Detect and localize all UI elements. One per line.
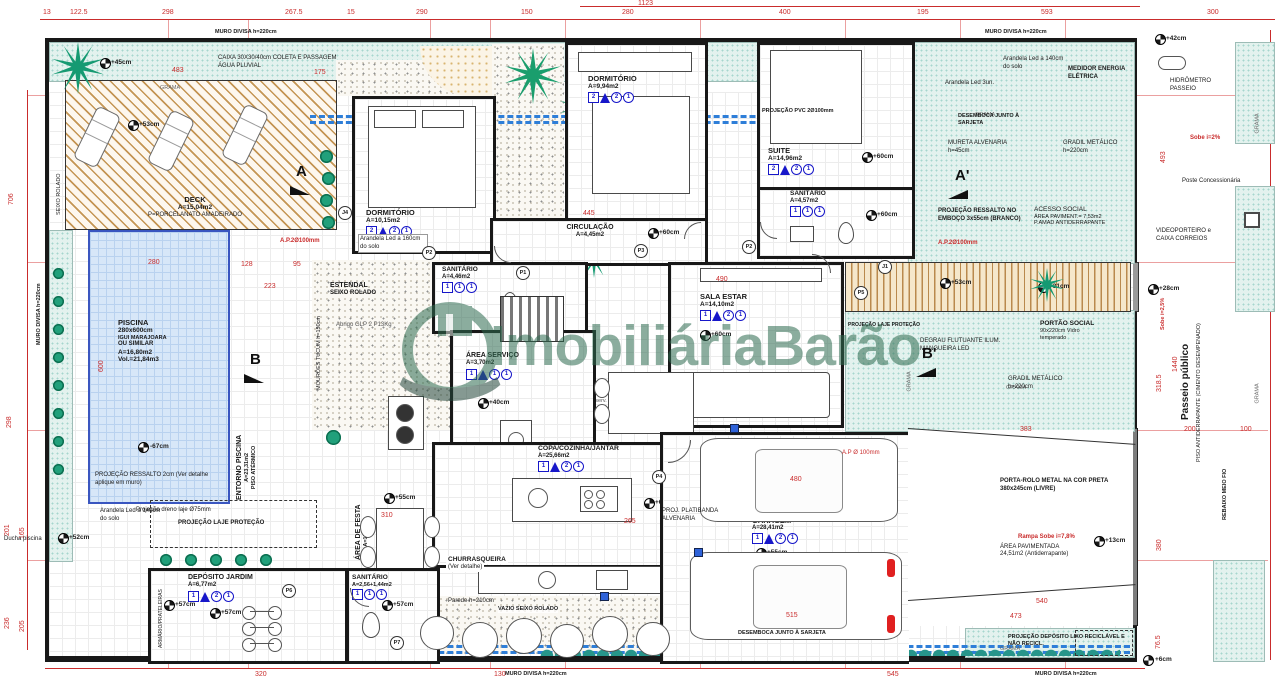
proj-pvc-label: PROJEÇÃO PVC 2Ø100mm — [762, 108, 834, 115]
rebaixo-label: REBAIXO MEIO FIO — [1222, 469, 1229, 520]
tag-triangle — [780, 165, 790, 175]
elevation-label: +60cm — [873, 153, 893, 160]
sink — [790, 226, 814, 242]
room-label-san-suite: SANITÁRIO A=4,57m2 1 1 1 — [790, 190, 870, 217]
dim-left: 298 — [6, 416, 13, 428]
dim-right: 493 — [1160, 151, 1167, 163]
elevation-label: +53cm — [139, 121, 159, 128]
burner — [584, 500, 593, 509]
arandela-140-label: Arandela Led a 140cm do solo — [1003, 56, 1067, 71]
arandela-160-label: Arandela Led a 160cm do solo — [358, 234, 428, 253]
benchmark-icon — [382, 600, 393, 611]
elevation-label: +57cm — [175, 601, 195, 608]
benchmark-icon — [1155, 34, 1166, 45]
tag-badge: 1 — [188, 591, 199, 602]
dim-line-bottom — [45, 668, 1145, 669]
muro-divisa-bottom-1: MURO DIVISA h=220cm — [505, 671, 567, 678]
lixo-dash — [1075, 630, 1133, 656]
elevation-label: +57cm — [393, 601, 413, 608]
section-marker-a2: A' — [955, 168, 969, 183]
room-label-entorno: ENTORNO PISCINA A=23,31m2 PISO ATÉRMICO — [236, 435, 258, 500]
tag-triangle — [550, 462, 560, 472]
room-label-deck: DECK A=15,04m2 P=PORCELANATO AMADEIRADO — [130, 195, 260, 219]
dim-right: 76.5 — [1155, 635, 1162, 649]
room-label-pavimentada: ÁREA PAVIMENTADA 24,51m2 (Antiderrapante… — [1000, 544, 1110, 558]
tag-badge: 2 — [561, 461, 572, 472]
medidor-label: MEDIDOR ENERGIA ELÉTRICA — [1068, 66, 1134, 81]
elevation-label: +55cm — [395, 494, 415, 501]
door-tag: P6 — [282, 584, 296, 598]
door-tag: P1 — [516, 266, 530, 280]
benchmark-icon — [384, 493, 395, 504]
vazio-seixo-label: VAZIO SEIXO ROLADO — [498, 606, 558, 613]
pillow — [374, 110, 416, 128]
section-triangle — [244, 374, 264, 383]
elevation-label: +60cm — [877, 211, 897, 218]
dim-right: 1440 — [1172, 356, 1179, 372]
dim-bottom: 130 — [494, 671, 506, 678]
grama-label: GRAMA — [1255, 383, 1262, 403]
dim-top: 195 — [917, 9, 929, 16]
ap-box — [730, 424, 739, 433]
abrigo-glp-label: Abrigo GLP 2 P13Kg — [336, 322, 396, 330]
island-sink — [528, 488, 548, 508]
toilet — [838, 222, 854, 244]
elevation-label: +6cm — [1155, 656, 1172, 663]
counter-stove — [596, 570, 628, 590]
watermark-logo-icon — [398, 300, 490, 392]
elevation-label: +45cm — [111, 59, 131, 66]
churrasqueira-label: CHURRASQUEIRA — [446, 556, 508, 564]
dim-left: 205 — [19, 620, 26, 632]
tag-badge: 1 — [790, 206, 801, 217]
caixa-coleta-label: CAIXA 30X30/40cm COLETA E PASSAGEM ÁGUA … — [218, 55, 353, 70]
tag-badge: 1 — [223, 591, 234, 602]
wardrobe — [578, 52, 692, 72]
elevation-label: +57cm — [221, 609, 241, 616]
dim-left: 706 — [8, 193, 15, 205]
muro-divisa-bottom-2: MURO DIVISA h=220cm — [1035, 671, 1097, 678]
dim-bottom: 545 — [887, 671, 899, 678]
videoporteiro-label: VIDEOPORTEIRO e CAIXA CORREIOS — [1156, 228, 1230, 243]
dim-bottom: 320 — [255, 671, 267, 678]
room-label-dorm2: DORMITÓRIO A=9,94m2 2 2 1 — [588, 74, 688, 103]
elevation-label: +28cm — [1159, 285, 1179, 292]
ap-box — [694, 548, 703, 557]
dim-top: 15 — [347, 9, 355, 16]
tag-badge: 1 — [802, 206, 813, 217]
desemboca-top: DESEMBOCA JUNTO À SARJETA — [958, 113, 1028, 127]
dim-top: 298 — [162, 9, 174, 16]
tree-icon — [52, 42, 104, 94]
proj-platibanda-alv-label: PROJ. PLATIBANDA ALVENARIA — [662, 508, 742, 523]
dim-top: 267.5 — [285, 9, 303, 16]
elevation-label: +52cm — [69, 534, 89, 541]
hidrometro-label: HIDRÔMETRO PASSEIO — [1170, 78, 1230, 93]
pool — [88, 230, 230, 504]
passeio-sub-label: PISO ANTIDERRAPANTE (CIMENTO DESEMPENADO… — [1196, 323, 1203, 462]
ap-box — [600, 592, 609, 601]
tag-triangle — [600, 93, 610, 103]
proj-ressalto-emboco-label: PROJEÇÃO RESSALTO NO EMBOÇO 3x55cm (BRAN… — [938, 208, 1038, 223]
car-bottom — [690, 552, 902, 640]
churrasqueira-sub: (Ver detalhe) — [446, 564, 484, 572]
benchmark-icon — [644, 498, 655, 509]
dim-right: 318.5 — [1156, 374, 1163, 392]
tag-badge: 1 — [573, 461, 584, 472]
sobe-25-label: Sobe i=2,5% — [1160, 298, 1167, 330]
tag-triangle — [200, 592, 210, 602]
room-label-copa: COPA/COZINHA/JANTAR A=25,66m2 1 2 1 — [538, 445, 668, 472]
tag-badge: 2 — [775, 533, 786, 544]
door-tag: P4 — [652, 470, 666, 484]
elevation-label: -67cm — [150, 443, 169, 450]
counter — [478, 566, 676, 594]
bed — [770, 50, 862, 144]
benchmark-icon — [866, 210, 877, 221]
proj-ressalto-label: PROJEÇÃO RESSALTO 2cm (Ver detalhe apliq… — [95, 472, 215, 487]
dim-overall-top: 1123 — [638, 0, 653, 7]
tag-badge: 2 — [588, 92, 599, 103]
benchmark-icon — [1094, 536, 1105, 547]
benchmark-icon — [648, 228, 659, 239]
tree-icon — [505, 48, 561, 104]
door-tag: P2 — [742, 240, 756, 254]
ap100-label: A.P Ø 100mm — [842, 450, 880, 458]
dim-top: 593 — [1041, 9, 1053, 16]
pillow — [422, 110, 464, 128]
watermark: ImobiliáriaBarão — [398, 288, 1104, 404]
benchmark-icon — [164, 600, 175, 611]
grama-label: GRAMA — [160, 85, 180, 92]
tag-badge: 1 — [623, 92, 634, 103]
armario-label: ARMÁRIO/PRATELEIRAS — [158, 589, 164, 648]
door-tag: J4 — [338, 206, 352, 220]
dreno-label: Projeção dreno laje Ø75mm — [136, 507, 211, 515]
grama-label: GRAMA — [1255, 113, 1262, 133]
benchmark-icon — [210, 608, 221, 619]
section-triangle — [290, 186, 310, 195]
benchmark-icon — [138, 442, 149, 453]
porta-rolo-label: PORTA-ROLO METAL NA COR PRETA 380x245cm … — [1000, 478, 1110, 493]
floor-plan-canvas: 1123 13 122.5 298 267.5 15 290 150 280 4… — [0, 0, 1280, 682]
burner — [596, 490, 605, 499]
benchmark-icon — [58, 533, 69, 544]
door-tag: J1 — [878, 260, 892, 274]
benchmark-icon — [128, 120, 139, 131]
dim-line-top-overall — [580, 6, 1140, 7]
dim-right: 380 — [1156, 539, 1163, 551]
elevation-label: +53cm — [951, 279, 971, 286]
door-tag: P3 — [634, 244, 648, 258]
room-label-acesso: ACESSO SOCIAL ÁREA PAVIMENT.= 7,53m2 P.A… — [1034, 206, 1134, 227]
dim-top: 13 — [43, 9, 51, 16]
hidrometro-icon — [1158, 56, 1186, 70]
ap2-label: A.P.2Ø100mm — [938, 240, 978, 248]
dim-line-left — [27, 90, 28, 650]
dim-line-top — [40, 19, 1275, 20]
mouroes-label: MOURÕES TUCUM h=150cm — [316, 316, 323, 390]
room-label-circulacao: CIRCULAÇÃO A=4,45m2 — [540, 224, 640, 240]
muro-divisa-top-left: MURO DIVISA h=220cm — [215, 29, 277, 36]
rampa-sobe-label: Rampa Sobe i=7,8% — [1018, 534, 1075, 542]
room-label-dorm1: DORMITÓRIO A=10,15m2 2 2 1 — [366, 208, 476, 237]
mureta-label: MURETA ALVENARIA h=45cm — [948, 140, 1018, 155]
arandela-3un-label: Arandela Led 3un. — [945, 80, 995, 88]
burner — [596, 500, 605, 509]
dim-top: 122.5 — [70, 9, 88, 16]
poste-label: Poste Concessionária — [1182, 178, 1242, 186]
tag-badge: 1 — [752, 533, 763, 544]
dim-left: 201 — [4, 524, 11, 536]
room-label-suite: SUITE A=14,96m2 2 2 1 — [768, 146, 848, 175]
section-marker-b: B — [250, 352, 261, 367]
tag-badge: 2 — [211, 591, 222, 602]
poste-icon — [1244, 212, 1260, 228]
door-tag: P7 — [390, 636, 404, 650]
gradil-label-1: GRADIL METÁLICO h=220cm — [1063, 140, 1125, 155]
ducha-label: Ducha piscina — [4, 536, 42, 544]
benchmark-icon — [1143, 655, 1154, 666]
door-tag: P2 — [422, 246, 436, 260]
burner — [584, 490, 593, 499]
parede-label: Parede h=210cm — [448, 598, 494, 606]
elevation-label: +60cm — [659, 229, 679, 236]
grass-left-strip — [49, 230, 73, 562]
tag-triangle — [764, 534, 774, 544]
toilet — [362, 612, 380, 638]
dim-top: 150 — [521, 9, 533, 16]
burner — [396, 426, 414, 444]
dim-top: 290 — [416, 9, 428, 16]
ap2-label-left: A.P.2Ø100mm — [280, 238, 320, 246]
elevation-label: +42cm — [1166, 35, 1186, 42]
tag-badge: 2 — [791, 164, 802, 175]
sobe-label: Sobe i=2% — [1190, 135, 1220, 143]
tag-badge: 1 — [787, 533, 798, 544]
section-marker-a: A — [296, 164, 307, 179]
muro-divisa-left: MURO DIVISA h=220cm — [36, 283, 43, 345]
tag-badge: 1 — [803, 164, 814, 175]
tag-badge: 2 — [768, 164, 779, 175]
dim-top: 300 — [1207, 9, 1219, 16]
benchmark-icon — [1148, 284, 1159, 295]
tag-badge: 1 — [814, 206, 825, 217]
burner — [396, 404, 414, 422]
bed — [592, 96, 690, 194]
proj-laje-label: PROJEÇÃO LAJE PROTEÇÃO — [178, 520, 264, 528]
benchmark-icon — [100, 58, 111, 69]
dim-top: 280 — [622, 9, 634, 16]
tag-badge: 1 — [376, 589, 387, 600]
tag-badge: 1 — [538, 461, 549, 472]
seixo-rolado-left: SEIXO ROLADO — [56, 173, 63, 215]
room-label-piscina: PISCINA 280x600cm IGUI MARAJOARA OU SIMI… — [118, 318, 208, 364]
elevation-label: +13cm — [1105, 537, 1125, 544]
benchmark-icon — [862, 152, 873, 163]
dim-top: 400 — [779, 9, 791, 16]
dim-left: 236 — [4, 617, 11, 629]
counter-sink — [538, 571, 556, 589]
tag-badge: 2 — [611, 92, 622, 103]
watermark-text: ImobiliáriaBarão — [490, 313, 921, 379]
grass-sidewalk-3 — [1213, 560, 1265, 662]
muro-divisa-top-right: MURO DIVISA h=220cm — [985, 29, 1047, 36]
desemboca-garage: DESEMBOCA JUNTO À SARJETA — [738, 630, 828, 637]
passeio-publico-label: Passeio público — [1180, 344, 1193, 420]
section-triangle — [948, 190, 968, 199]
grass-sidewalk-2 — [1235, 186, 1275, 312]
